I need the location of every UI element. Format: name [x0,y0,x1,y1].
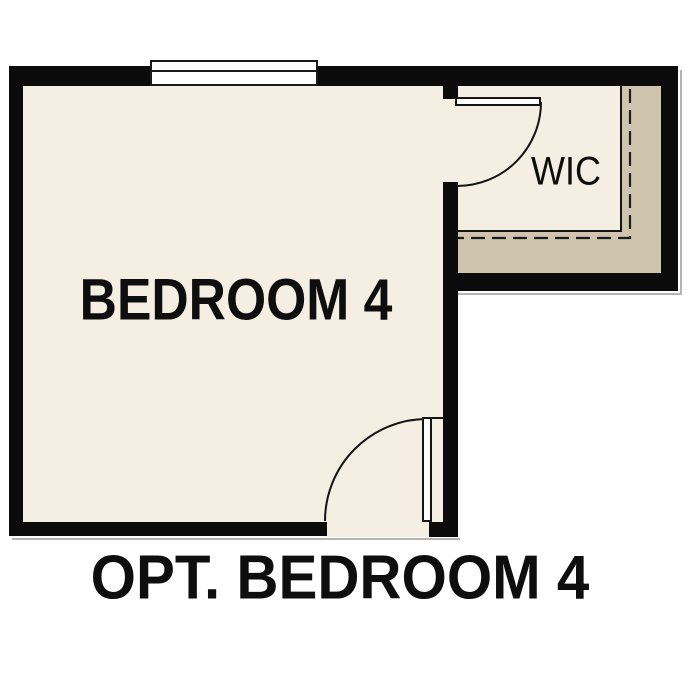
window [150,60,318,86]
bedroom-door-leaf [422,417,432,522]
bedroom-door-header-line [432,417,443,419]
wall-shadow-right [680,70,682,293]
wall-bedroom-right [443,182,458,537]
wall-bottom [9,522,327,536]
floor-plan: BEDROOM 4 WIC OPT. BEDROOM 4 [0,0,687,687]
wall-shadow-bottom [12,538,460,540]
wic-door-leaf [455,97,541,106]
plan-caption: OPT. BEDROOM 4 [91,543,590,614]
wall-left [9,66,23,536]
wall-closet-bottom [443,273,678,291]
bedroom-door-opening [327,522,429,537]
bedroom-label: BEDROOM 4 [80,267,393,334]
wall-right [661,66,678,291]
wall-top [9,66,678,86]
window-mullion-line [152,70,316,72]
wall-bottom-corner-foot [429,522,458,537]
wall-shadow-closet-bottom [447,293,682,295]
wic-label: WIC [531,150,601,195]
wic-door-opening [443,99,458,182]
